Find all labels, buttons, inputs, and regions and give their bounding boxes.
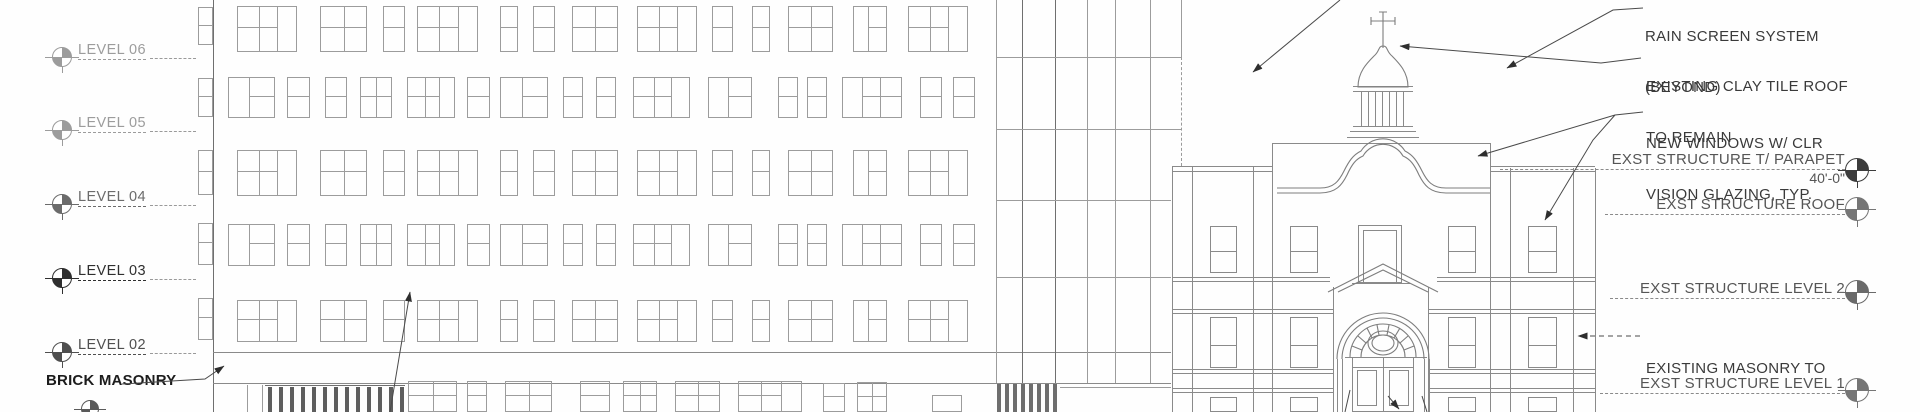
window-mullion bbox=[1211, 345, 1236, 346]
window-mullion bbox=[789, 171, 832, 172]
line bbox=[996, 129, 1181, 130]
window-mullion bbox=[862, 78, 863, 117]
line bbox=[1172, 171, 1272, 172]
window bbox=[853, 6, 887, 52]
window-mullion bbox=[384, 171, 404, 172]
window-mullion bbox=[199, 171, 212, 172]
window-mullion bbox=[862, 243, 901, 244]
window-mullion bbox=[808, 243, 826, 244]
leader-line bbox=[1345, 390, 1350, 412]
window-mullion bbox=[713, 27, 732, 28]
line bbox=[1428, 309, 1595, 310]
level-label: LEVEL 05 bbox=[78, 115, 146, 133]
storefront-stripe bbox=[268, 387, 272, 412]
window bbox=[1290, 397, 1318, 412]
line bbox=[1172, 281, 1330, 282]
window-mullion bbox=[811, 151, 812, 195]
window-mullion bbox=[930, 301, 931, 341]
window-mullion bbox=[811, 301, 812, 341]
window bbox=[500, 224, 548, 266]
line bbox=[1429, 359, 1430, 412]
window bbox=[563, 224, 583, 266]
window bbox=[1210, 226, 1237, 273]
line bbox=[1172, 309, 1333, 310]
window-mullion bbox=[321, 171, 366, 172]
tower-base-stripe bbox=[1021, 384, 1025, 412]
window-mullion bbox=[249, 225, 250, 265]
window-mullion bbox=[713, 319, 732, 320]
window bbox=[788, 300, 833, 342]
window bbox=[778, 77, 798, 118]
line bbox=[1375, 91, 1376, 126]
datum-marker-icon bbox=[52, 342, 72, 362]
window-mullion bbox=[868, 301, 869, 341]
level-label: LEVEL 02 bbox=[78, 337, 146, 355]
line bbox=[1172, 166, 1272, 167]
level-label: LEVEL 06 bbox=[78, 42, 146, 60]
level-dashed-line bbox=[150, 131, 196, 132]
level-dashed-line bbox=[150, 279, 196, 280]
storefront-stripe bbox=[356, 387, 360, 412]
window bbox=[853, 300, 887, 342]
window-mullion bbox=[501, 27, 517, 28]
line bbox=[1403, 91, 1404, 126]
window-mullion bbox=[288, 96, 309, 97]
window-mullion bbox=[634, 243, 671, 244]
window bbox=[417, 6, 478, 52]
window bbox=[320, 6, 367, 52]
window-mullion bbox=[199, 317, 212, 318]
window-mullion bbox=[640, 382, 641, 411]
window bbox=[637, 300, 697, 342]
window bbox=[467, 77, 490, 118]
window-mullion bbox=[638, 319, 677, 320]
window-mullion bbox=[753, 27, 769, 28]
line bbox=[1428, 313, 1595, 314]
window-mullion bbox=[573, 27, 617, 28]
window bbox=[752, 300, 770, 342]
window-mullion bbox=[522, 96, 547, 97]
window-mullion bbox=[789, 27, 832, 28]
line bbox=[1172, 373, 1333, 374]
window-mullion bbox=[361, 96, 391, 97]
window-mullion bbox=[529, 382, 530, 411]
line bbox=[1272, 143, 1352, 144]
structure-datum-label: EXST STRUCTURE ROOF bbox=[1605, 196, 1845, 215]
window-mullion bbox=[408, 96, 439, 97]
window-mullion bbox=[808, 96, 826, 97]
window-mullion bbox=[458, 7, 459, 51]
line bbox=[1181, 57, 1182, 166]
window-mullion bbox=[249, 78, 250, 117]
window-mullion bbox=[862, 96, 901, 97]
window-mullion bbox=[199, 96, 212, 97]
window bbox=[228, 77, 275, 118]
window-mullion bbox=[597, 243, 615, 244]
window-mullion bbox=[761, 382, 762, 411]
window bbox=[383, 6, 405, 52]
window bbox=[637, 6, 697, 52]
window-mullion bbox=[425, 78, 426, 117]
window-mullion bbox=[739, 395, 781, 396]
window bbox=[1290, 226, 1318, 273]
window bbox=[752, 150, 770, 196]
window-mullion bbox=[638, 171, 677, 172]
line bbox=[1428, 388, 1595, 389]
line bbox=[1347, 137, 1419, 138]
window bbox=[953, 224, 975, 266]
church-curve bbox=[1352, 325, 1414, 350]
window-mullion bbox=[880, 78, 881, 117]
annotation-line: RAIN SCREEN SYSTEM bbox=[1645, 28, 1819, 45]
window-mullion bbox=[671, 78, 672, 117]
window bbox=[500, 77, 548, 118]
line bbox=[996, 57, 1181, 58]
window-mullion bbox=[439, 7, 440, 51]
window-mullion bbox=[534, 171, 554, 172]
window-mullion bbox=[326, 243, 346, 244]
line bbox=[996, 277, 1171, 278]
window-mullion bbox=[954, 96, 974, 97]
line bbox=[1490, 166, 1595, 167]
window-mullion bbox=[384, 319, 404, 320]
window-mullion bbox=[948, 151, 949, 195]
window-mullion bbox=[659, 301, 660, 341]
line bbox=[1172, 277, 1330, 278]
level-dashed-line bbox=[150, 353, 196, 354]
leader-line bbox=[1478, 112, 1643, 156]
window-mullion bbox=[1529, 251, 1556, 252]
window-mullion bbox=[376, 225, 377, 265]
window bbox=[287, 77, 310, 118]
tower-base-stripe bbox=[1045, 384, 1049, 412]
leader-line bbox=[1253, 0, 1340, 72]
structure-datum-label: EXST STRUCTURE LEVEL 1 bbox=[1600, 375, 1845, 394]
window bbox=[788, 6, 833, 52]
window-mullion bbox=[1449, 345, 1475, 346]
line bbox=[1428, 369, 1595, 370]
line bbox=[1368, 91, 1369, 126]
window-mullion bbox=[1529, 345, 1556, 346]
tower-base-stripe bbox=[1013, 384, 1017, 412]
window-mullion bbox=[728, 96, 751, 97]
window-mullion bbox=[753, 319, 769, 320]
window bbox=[505, 381, 552, 412]
line bbox=[1361, 91, 1362, 126]
church-curve bbox=[1337, 313, 1429, 359]
church-curve bbox=[1371, 12, 1395, 48]
window-mullion bbox=[522, 78, 523, 117]
window-mullion bbox=[439, 151, 440, 195]
line bbox=[1353, 86, 1413, 87]
window-mullion bbox=[458, 301, 459, 341]
window bbox=[572, 6, 618, 52]
window bbox=[788, 150, 833, 196]
window bbox=[1528, 317, 1557, 368]
window-mullion bbox=[573, 171, 617, 172]
window-mullion bbox=[677, 7, 678, 51]
window-mullion bbox=[921, 96, 941, 97]
annotation-line: NEW WINDOWS W/ CLR bbox=[1646, 135, 1823, 152]
window-mullion bbox=[277, 151, 278, 195]
window-mullion bbox=[654, 225, 655, 265]
storefront-stripe bbox=[290, 387, 294, 412]
window-mullion bbox=[501, 319, 517, 320]
tower-base-stripe bbox=[1005, 384, 1009, 412]
tower-base-stripe bbox=[1029, 384, 1033, 412]
window bbox=[500, 6, 518, 52]
window-mullion bbox=[439, 78, 440, 117]
line bbox=[1490, 171, 1595, 172]
storefront-stripe bbox=[367, 387, 371, 412]
window-mullion bbox=[659, 7, 660, 51]
window-mullion bbox=[326, 96, 346, 97]
window bbox=[712, 150, 733, 196]
window-mullion bbox=[728, 78, 729, 117]
window-mullion bbox=[321, 27, 366, 28]
datum-marker-icon bbox=[1845, 280, 1869, 304]
line bbox=[1389, 91, 1390, 126]
window bbox=[500, 300, 518, 342]
window bbox=[1528, 397, 1557, 412]
window-mullion bbox=[948, 301, 949, 341]
window bbox=[712, 6, 733, 52]
line bbox=[1396, 91, 1397, 126]
structure-datum-label: EXST STRUCTURE LEVEL 2 bbox=[1610, 280, 1845, 299]
church-curve bbox=[1342, 318, 1424, 359]
window bbox=[857, 382, 887, 412]
leader-line bbox=[1507, 8, 1643, 68]
window bbox=[633, 224, 690, 266]
window-mullion bbox=[277, 301, 278, 341]
window bbox=[417, 300, 478, 342]
window-mullion bbox=[909, 171, 948, 172]
window-mullion bbox=[930, 151, 931, 195]
window-mullion bbox=[868, 171, 886, 172]
tower-base-stripe bbox=[997, 384, 1001, 412]
window-mullion bbox=[259, 7, 260, 51]
window-mullion bbox=[534, 319, 554, 320]
window-mullion bbox=[277, 7, 278, 51]
window-mullion bbox=[409, 395, 456, 396]
line bbox=[1437, 277, 1595, 278]
window-mullion bbox=[288, 243, 309, 244]
storefront-stripe bbox=[301, 387, 305, 412]
window-mullion bbox=[384, 27, 404, 28]
window bbox=[237, 6, 297, 52]
datum-marker-icon bbox=[52, 120, 72, 140]
datum-marker-icon bbox=[1845, 158, 1869, 182]
window-mullion bbox=[811, 7, 812, 51]
window bbox=[1528, 226, 1557, 273]
fanlight-ellipse bbox=[1372, 335, 1394, 351]
window bbox=[807, 224, 827, 266]
window-mullion bbox=[249, 96, 274, 97]
window-mullion bbox=[425, 225, 426, 265]
window-mullion bbox=[597, 96, 615, 97]
window bbox=[633, 77, 690, 118]
line bbox=[1253, 166, 1254, 412]
annotation-existing-masonry: EXISTING MASONRY TO REMAIN bbox=[1646, 326, 1826, 412]
window-mullion bbox=[677, 151, 678, 195]
window bbox=[198, 78, 213, 117]
storefront-stripe bbox=[334, 387, 338, 412]
line bbox=[1382, 91, 1383, 126]
line bbox=[1337, 359, 1338, 412]
line bbox=[1172, 369, 1333, 370]
line bbox=[1428, 373, 1595, 374]
line bbox=[1172, 166, 1173, 412]
window-mullion bbox=[1291, 345, 1317, 346]
window-mullion bbox=[344, 151, 345, 195]
window-mullion bbox=[595, 151, 596, 195]
line bbox=[1424, 359, 1425, 412]
storefront-stripe bbox=[279, 387, 283, 412]
window-mullion bbox=[522, 225, 523, 265]
window bbox=[417, 150, 478, 196]
window bbox=[237, 300, 297, 342]
window-mullion bbox=[199, 25, 212, 26]
window-mullion bbox=[779, 243, 797, 244]
window bbox=[807, 77, 827, 118]
line bbox=[262, 385, 263, 412]
line bbox=[1333, 287, 1334, 412]
window-mullion bbox=[868, 7, 869, 51]
church-curve bbox=[1358, 46, 1408, 87]
line bbox=[1510, 168, 1511, 412]
church-curve bbox=[1277, 139, 1490, 188]
window-mullion bbox=[564, 96, 582, 97]
tower-base-stripe bbox=[1037, 384, 1041, 412]
window bbox=[198, 223, 213, 265]
window-mullion bbox=[249, 243, 274, 244]
window bbox=[853, 150, 887, 196]
window-mullion bbox=[238, 319, 277, 320]
window-mullion bbox=[259, 301, 260, 341]
line bbox=[1353, 126, 1413, 127]
window-mullion bbox=[1449, 251, 1475, 252]
window bbox=[1448, 226, 1476, 273]
window-mullion bbox=[868, 151, 869, 195]
storefront-stripe bbox=[345, 387, 349, 412]
line bbox=[1172, 388, 1333, 389]
window-mullion bbox=[824, 396, 844, 397]
door-panel bbox=[1357, 370, 1377, 406]
church-curves bbox=[1277, 12, 1490, 359]
datum-marker-icon bbox=[81, 400, 99, 412]
window bbox=[228, 224, 275, 266]
window bbox=[953, 77, 975, 118]
window bbox=[623, 381, 657, 412]
window bbox=[708, 224, 752, 266]
window-mullion bbox=[581, 395, 609, 396]
window bbox=[325, 224, 347, 266]
window-mullion bbox=[930, 7, 931, 51]
window-mullion bbox=[595, 301, 596, 341]
window bbox=[467, 381, 487, 412]
facade-niche bbox=[1363, 230, 1397, 283]
window-mullion bbox=[418, 27, 458, 28]
window-mullion bbox=[781, 382, 782, 411]
line bbox=[213, 0, 214, 412]
window bbox=[712, 300, 733, 342]
line bbox=[213, 352, 1171, 353]
window bbox=[287, 224, 310, 266]
line bbox=[1172, 392, 1333, 393]
datum-marker-icon bbox=[52, 194, 72, 214]
level-dashed-line bbox=[150, 205, 196, 206]
window-mullion bbox=[698, 382, 699, 411]
window-mullion bbox=[948, 7, 949, 51]
window-mullion bbox=[921, 243, 941, 244]
window bbox=[1290, 317, 1318, 368]
window bbox=[1210, 317, 1237, 368]
window bbox=[932, 395, 962, 412]
tower-base-stripe bbox=[1053, 384, 1057, 412]
window-mullion bbox=[880, 225, 881, 265]
window-mullion bbox=[676, 395, 719, 396]
window-mullion bbox=[418, 171, 458, 172]
window bbox=[320, 300, 367, 342]
window-mullion bbox=[624, 395, 656, 396]
level-dashed-line bbox=[150, 58, 196, 59]
window bbox=[408, 381, 457, 412]
window-mullion bbox=[468, 96, 489, 97]
window-mullion bbox=[634, 96, 671, 97]
window-mullion bbox=[344, 301, 345, 341]
window bbox=[533, 6, 555, 52]
window-mullion bbox=[872, 383, 873, 411]
window bbox=[407, 77, 455, 118]
window-mullion bbox=[753, 171, 769, 172]
window-mullion bbox=[458, 151, 459, 195]
window-mullion bbox=[534, 27, 554, 28]
window-mullion bbox=[439, 225, 440, 265]
elevation-drawing: LEVEL 06LEVEL 05LEVEL 04LEVEL 03LEVEL 02… bbox=[0, 0, 1920, 412]
line bbox=[1192, 166, 1193, 412]
line bbox=[1172, 313, 1333, 314]
window bbox=[675, 381, 720, 412]
window-mullion bbox=[238, 27, 277, 28]
window bbox=[842, 224, 902, 266]
fanlight-ellipse bbox=[1368, 331, 1398, 355]
structure-datum-label: EXST STRUCTURE T/ PARAPET bbox=[1500, 151, 1845, 170]
line bbox=[1595, 168, 1596, 412]
storefront-stripe bbox=[400, 387, 404, 412]
window-mullion bbox=[506, 395, 551, 396]
window-mullion bbox=[468, 243, 489, 244]
window-mullion bbox=[439, 301, 440, 341]
window bbox=[823, 383, 845, 412]
window bbox=[383, 150, 405, 196]
level-label: LEVEL 04 bbox=[78, 189, 146, 207]
window-mullion bbox=[418, 319, 458, 320]
window-mullion bbox=[728, 243, 751, 244]
line bbox=[1353, 91, 1413, 92]
window-mullion bbox=[595, 7, 596, 51]
window bbox=[637, 150, 697, 196]
datum-marker-icon bbox=[1845, 378, 1869, 402]
door-panel bbox=[1389, 370, 1409, 406]
annotation-line: EXISTING CLAY TILE ROOF bbox=[1646, 78, 1848, 95]
window bbox=[383, 300, 405, 342]
window bbox=[920, 77, 942, 118]
line bbox=[1352, 283, 1410, 284]
window bbox=[572, 300, 618, 342]
line bbox=[1344, 143, 1422, 144]
window-mullion bbox=[862, 225, 863, 265]
storefront-stripe bbox=[312, 387, 316, 412]
